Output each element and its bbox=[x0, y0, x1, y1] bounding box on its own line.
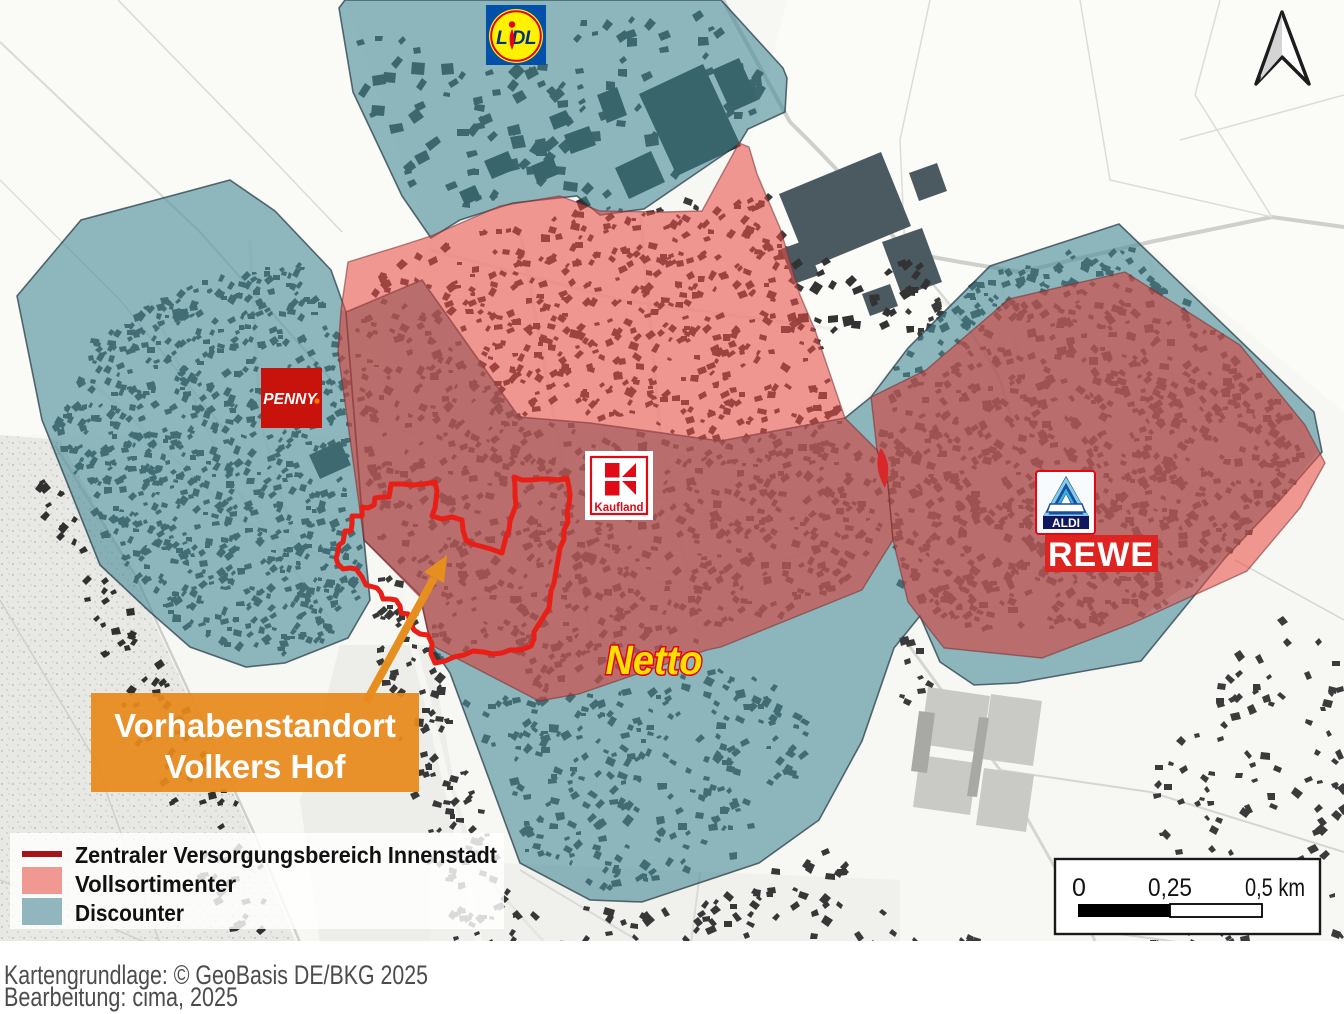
svg-text:PENNY: PENNY bbox=[263, 391, 318, 408]
svg-text:0: 0 bbox=[1072, 874, 1086, 902]
svg-text:Bearbeitung: cima, 2025: Bearbeitung: cima, 2025 bbox=[4, 982, 238, 1012]
svg-text:L DL: L DL bbox=[496, 28, 536, 49]
svg-text:Volkers Hof: Volkers Hof bbox=[165, 748, 347, 785]
svg-text:Netto: Netto bbox=[606, 637, 703, 683]
svg-text:Vorhabenstandort: Vorhabenstandort bbox=[114, 707, 396, 744]
svg-text:ALDI: ALDI bbox=[1052, 516, 1080, 530]
svg-text:0,5 km: 0,5 km bbox=[1245, 874, 1305, 902]
svg-text:REWE: REWE bbox=[1048, 536, 1154, 574]
svg-text:Vollsortimenter: Vollsortimenter bbox=[75, 871, 236, 897]
svg-text:Zentraler Versorgungsbereich I: Zentraler Versorgungsbereich Innenstadt bbox=[75, 842, 497, 868]
svg-text:Discounter: Discounter bbox=[75, 900, 184, 926]
svg-text:0,25: 0,25 bbox=[1148, 874, 1192, 902]
svg-text:Kaufland: Kaufland bbox=[594, 502, 643, 514]
